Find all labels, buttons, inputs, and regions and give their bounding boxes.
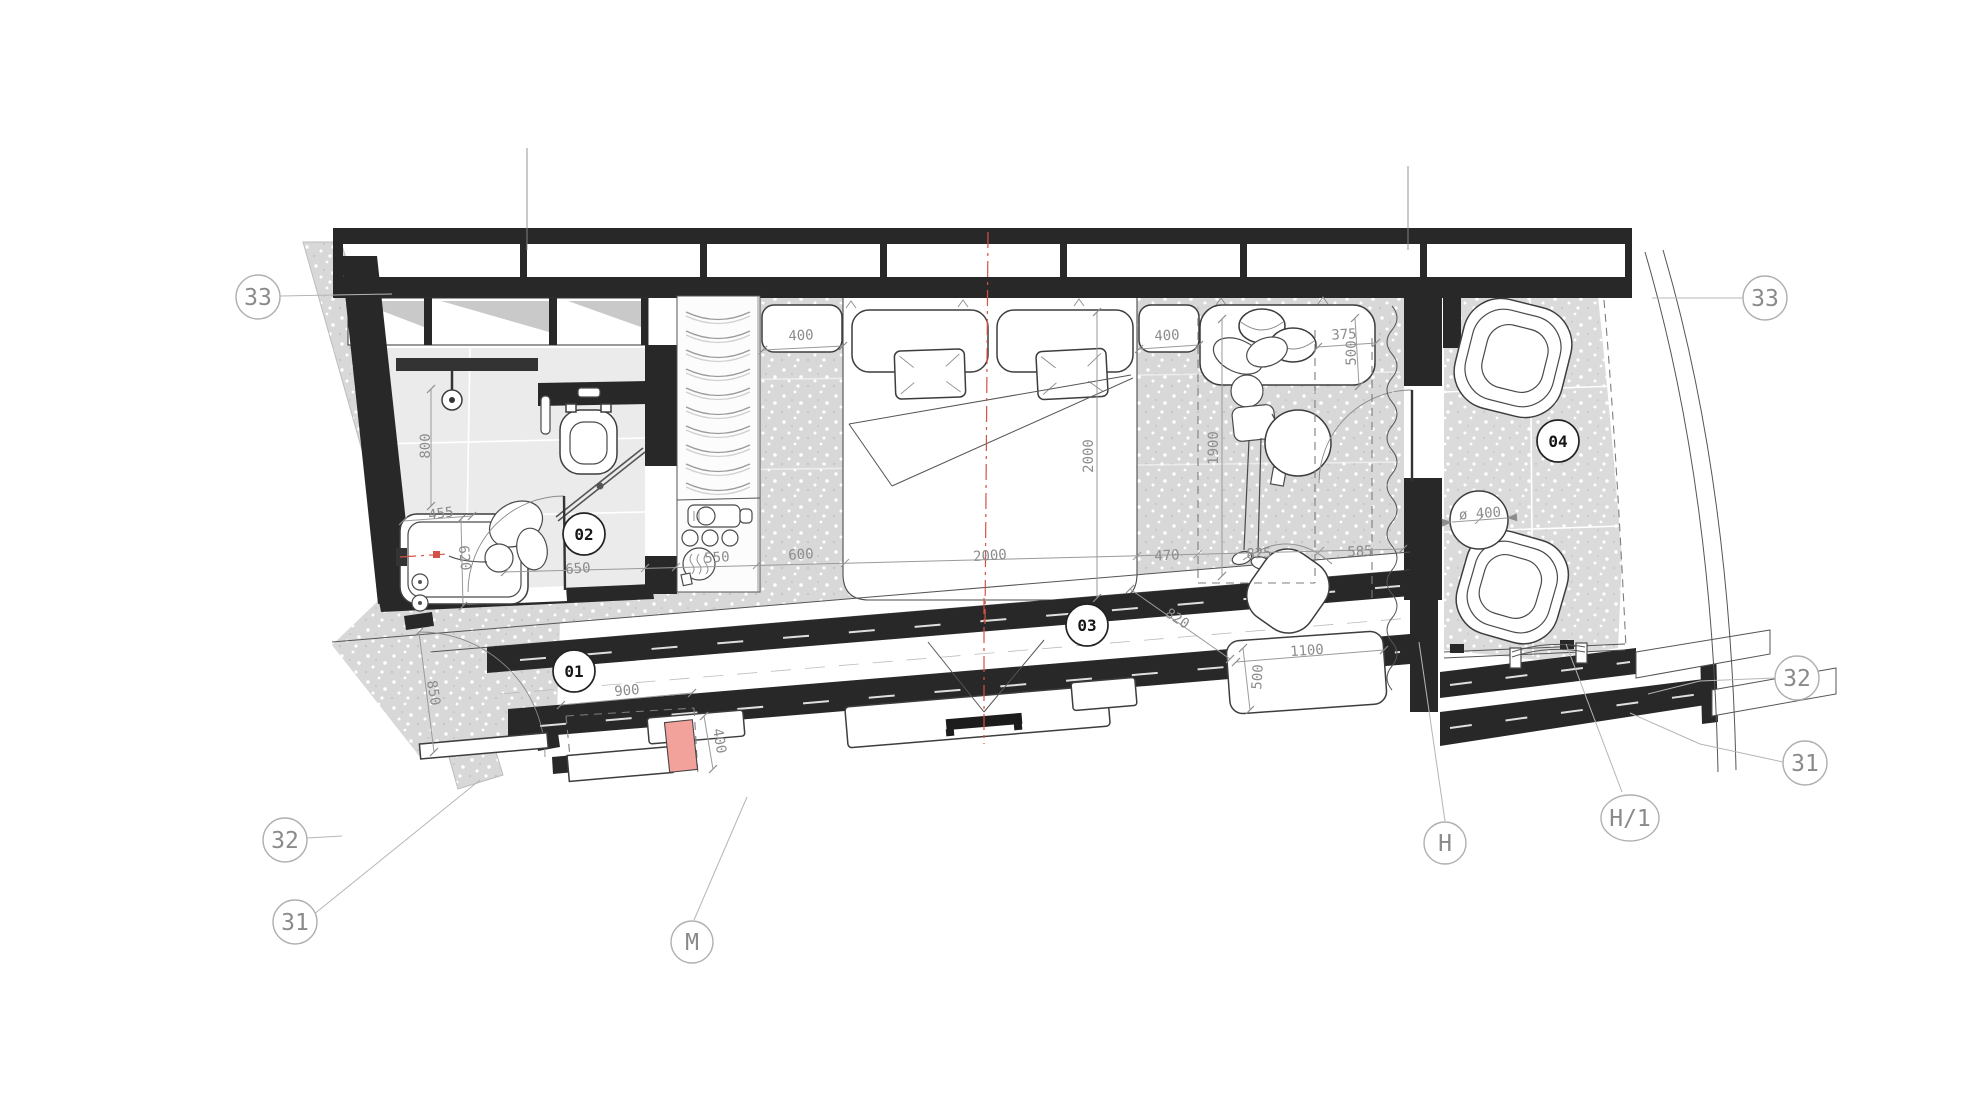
dimension-label: 650 [565, 560, 591, 578]
dimension-label: 2000 [1081, 439, 1097, 473]
grid-bubble-label: 33 [1751, 286, 1779, 312]
grid-bubble: 33 [236, 275, 280, 319]
dimension-label: 620 [455, 545, 473, 572]
grid-bubble-label: M [685, 930, 699, 956]
dimension-label: 400 [788, 327, 814, 344]
grid-bubble-label: H/1 [1609, 806, 1651, 832]
top-wall [333, 148, 1632, 298]
dimension-label: 2000 [973, 547, 1008, 565]
dimension-label: 470 [1154, 547, 1180, 564]
grid-bubble: H/1 [1601, 795, 1659, 841]
room-tag-label: 03 [1077, 616, 1096, 635]
grid-bubble: 31 [273, 900, 317, 944]
grid-bubble: 33 [1743, 276, 1787, 320]
hall-console [567, 747, 673, 782]
dimension-label: 900 [614, 682, 641, 700]
room-tag: 04 [1537, 420, 1579, 462]
grid-bubble: 32 [263, 818, 307, 862]
grid-bubble-label: 31 [1791, 751, 1819, 777]
grid-bubble-label: 32 [1783, 666, 1811, 692]
window-frame-piece [1071, 677, 1137, 710]
bathroom-right-wall [645, 345, 677, 466]
balcony-partition-upper [1404, 294, 1442, 386]
grid-bubble-label: 33 [244, 285, 272, 311]
grid-bubble-label: 32 [271, 828, 299, 854]
window-band [348, 298, 648, 345]
dimension-label: ø 400 [1458, 505, 1501, 524]
pillow [894, 349, 966, 399]
dimension-label: 550 [704, 549, 730, 567]
dimension-label: 400 [1154, 327, 1180, 344]
room-tag-label: 02 [574, 525, 593, 544]
grid-bubble: M [671, 921, 713, 963]
dimension-label: 585 [1347, 543, 1373, 560]
room-tag-label: 01 [564, 662, 583, 681]
highlight-element [664, 720, 697, 773]
grid-bubble-label: H [1438, 831, 1452, 857]
round-table [1265, 410, 1331, 476]
shower-ledge [396, 358, 538, 371]
grid-bubble: H [1424, 822, 1466, 864]
cups-icons [682, 530, 738, 546]
dimension-label: 825 [1246, 545, 1272, 562]
dimension-label: 600 [788, 546, 814, 564]
top-wall-joints [333, 244, 1632, 277]
dimension-label: 400 [709, 727, 729, 755]
grid-bubble-label: 31 [281, 910, 309, 936]
wardrobe [677, 296, 760, 592]
grab-bar [541, 396, 550, 434]
room-tag: 02 [563, 513, 605, 555]
dimension-label: 500 [1249, 664, 1267, 690]
dimension-label: 1900 [1206, 431, 1222, 465]
room-tag-label: 04 [1548, 432, 1567, 451]
balcony-jamb [1443, 294, 1461, 348]
floor-plan: 4002000400375500190080045562085090040065… [0, 0, 1980, 1112]
room-tag: 03 [1066, 604, 1108, 646]
grid-bubble: 31 [1783, 741, 1827, 785]
dimension-label: 800 [418, 433, 434, 458]
room-tag: 01 [553, 650, 595, 692]
facade-connector [1410, 598, 1438, 712]
dimension-label: 500 [1344, 340, 1360, 365]
grid-bubble: 32 [1775, 656, 1819, 700]
dimension-label: 1100 [1290, 642, 1325, 660]
